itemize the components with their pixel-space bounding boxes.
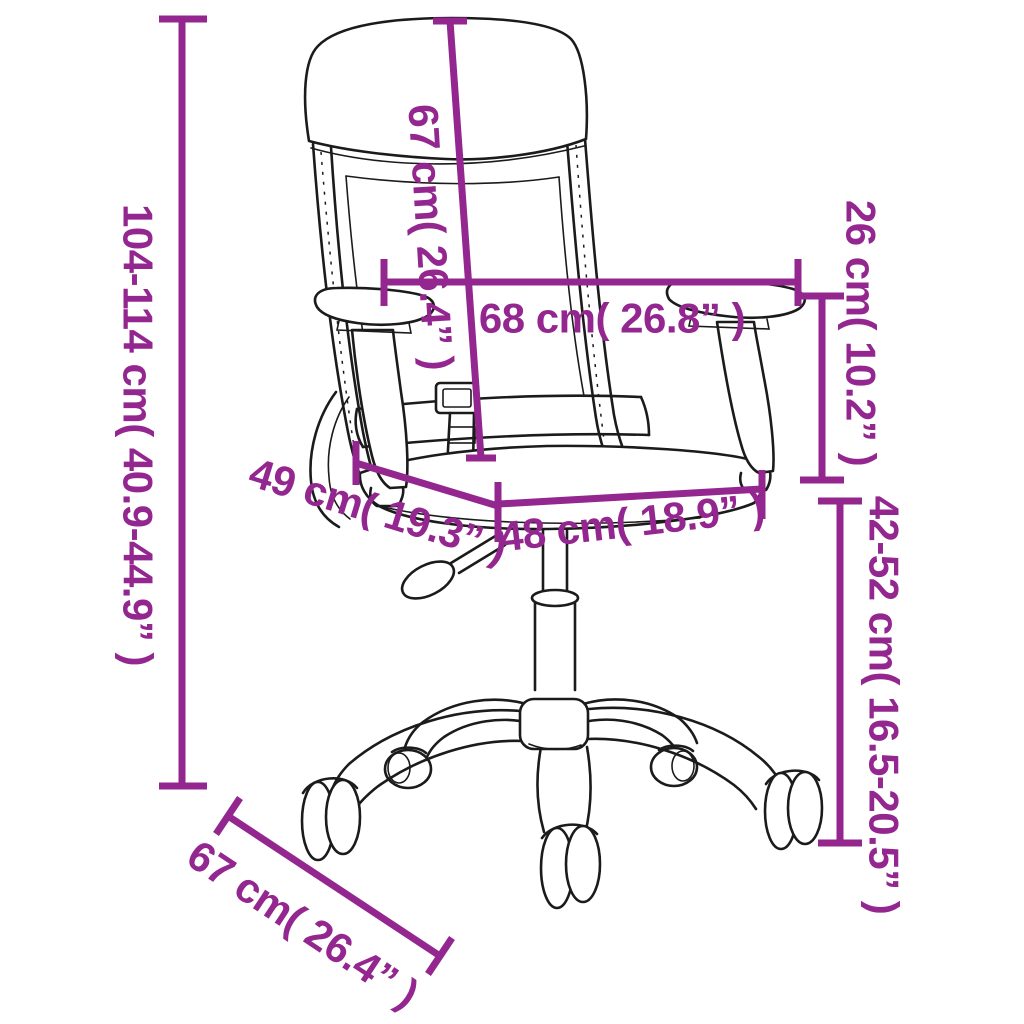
chair-drawing	[302, 18, 822, 908]
leg-front-center-left	[538, 747, 544, 832]
caster-wheel-front	[788, 772, 822, 844]
caster-back-right	[651, 746, 697, 786]
dim-tick-start	[216, 798, 240, 834]
caster-wheel-front	[326, 780, 360, 854]
lift-collar	[532, 590, 578, 606]
dim-overall-height: 104-114 cm( 40.9-44.9” )	[115, 19, 208, 786]
dim-armrest-height: 26 cm( 10.2” )	[800, 200, 885, 480]
lever-handle	[396, 554, 460, 606]
dimension-annotations: 104-114 cm( 40.9-44.9” ) 67 cm( 26.4” ) …	[115, 19, 908, 1017]
dim-armrest-height-label: 26 cm( 10.2” )	[838, 200, 885, 466]
caster-front-right	[765, 771, 822, 849]
dim-seat-height-label: 42-52 cm( 16.5-20.5” )	[861, 496, 908, 915]
base-hub	[520, 699, 588, 749]
armrest-support	[717, 322, 774, 473]
leg-front-left-bottom	[354, 741, 523, 811]
leg-back-left-bottom	[427, 720, 531, 757]
dim-seat-height: 42-52 cm( 16.5-20.5” )	[818, 496, 908, 915]
caster-front-center	[541, 825, 600, 908]
chair-base	[302, 699, 822, 908]
dim-tick-end	[428, 938, 452, 974]
diagram-canvas: 104-114 cm( 40.9-44.9” ) 67 cm( 26.4” ) …	[0, 0, 1024, 1024]
caster-wheel-front	[566, 826, 600, 902]
lumbar-strap-buckle	[449, 427, 475, 443]
dimension-diagram-page: 104-114 cm( 40.9-44.9” ) 67 cm( 26.4” ) …	[0, 0, 1024, 1024]
leg-back-right-top	[583, 699, 697, 743]
lumbar-right-cap	[641, 397, 649, 435]
caster-front-left	[302, 778, 360, 860]
dim-width-armrests-label: 68 cm( 26.8” )	[479, 295, 745, 342]
leg-front-center-right	[585, 747, 591, 834]
mesh-top-edge	[346, 176, 559, 184]
dim-overall-height-label: 104-114 cm( 40.9-44.9” )	[115, 204, 162, 666]
